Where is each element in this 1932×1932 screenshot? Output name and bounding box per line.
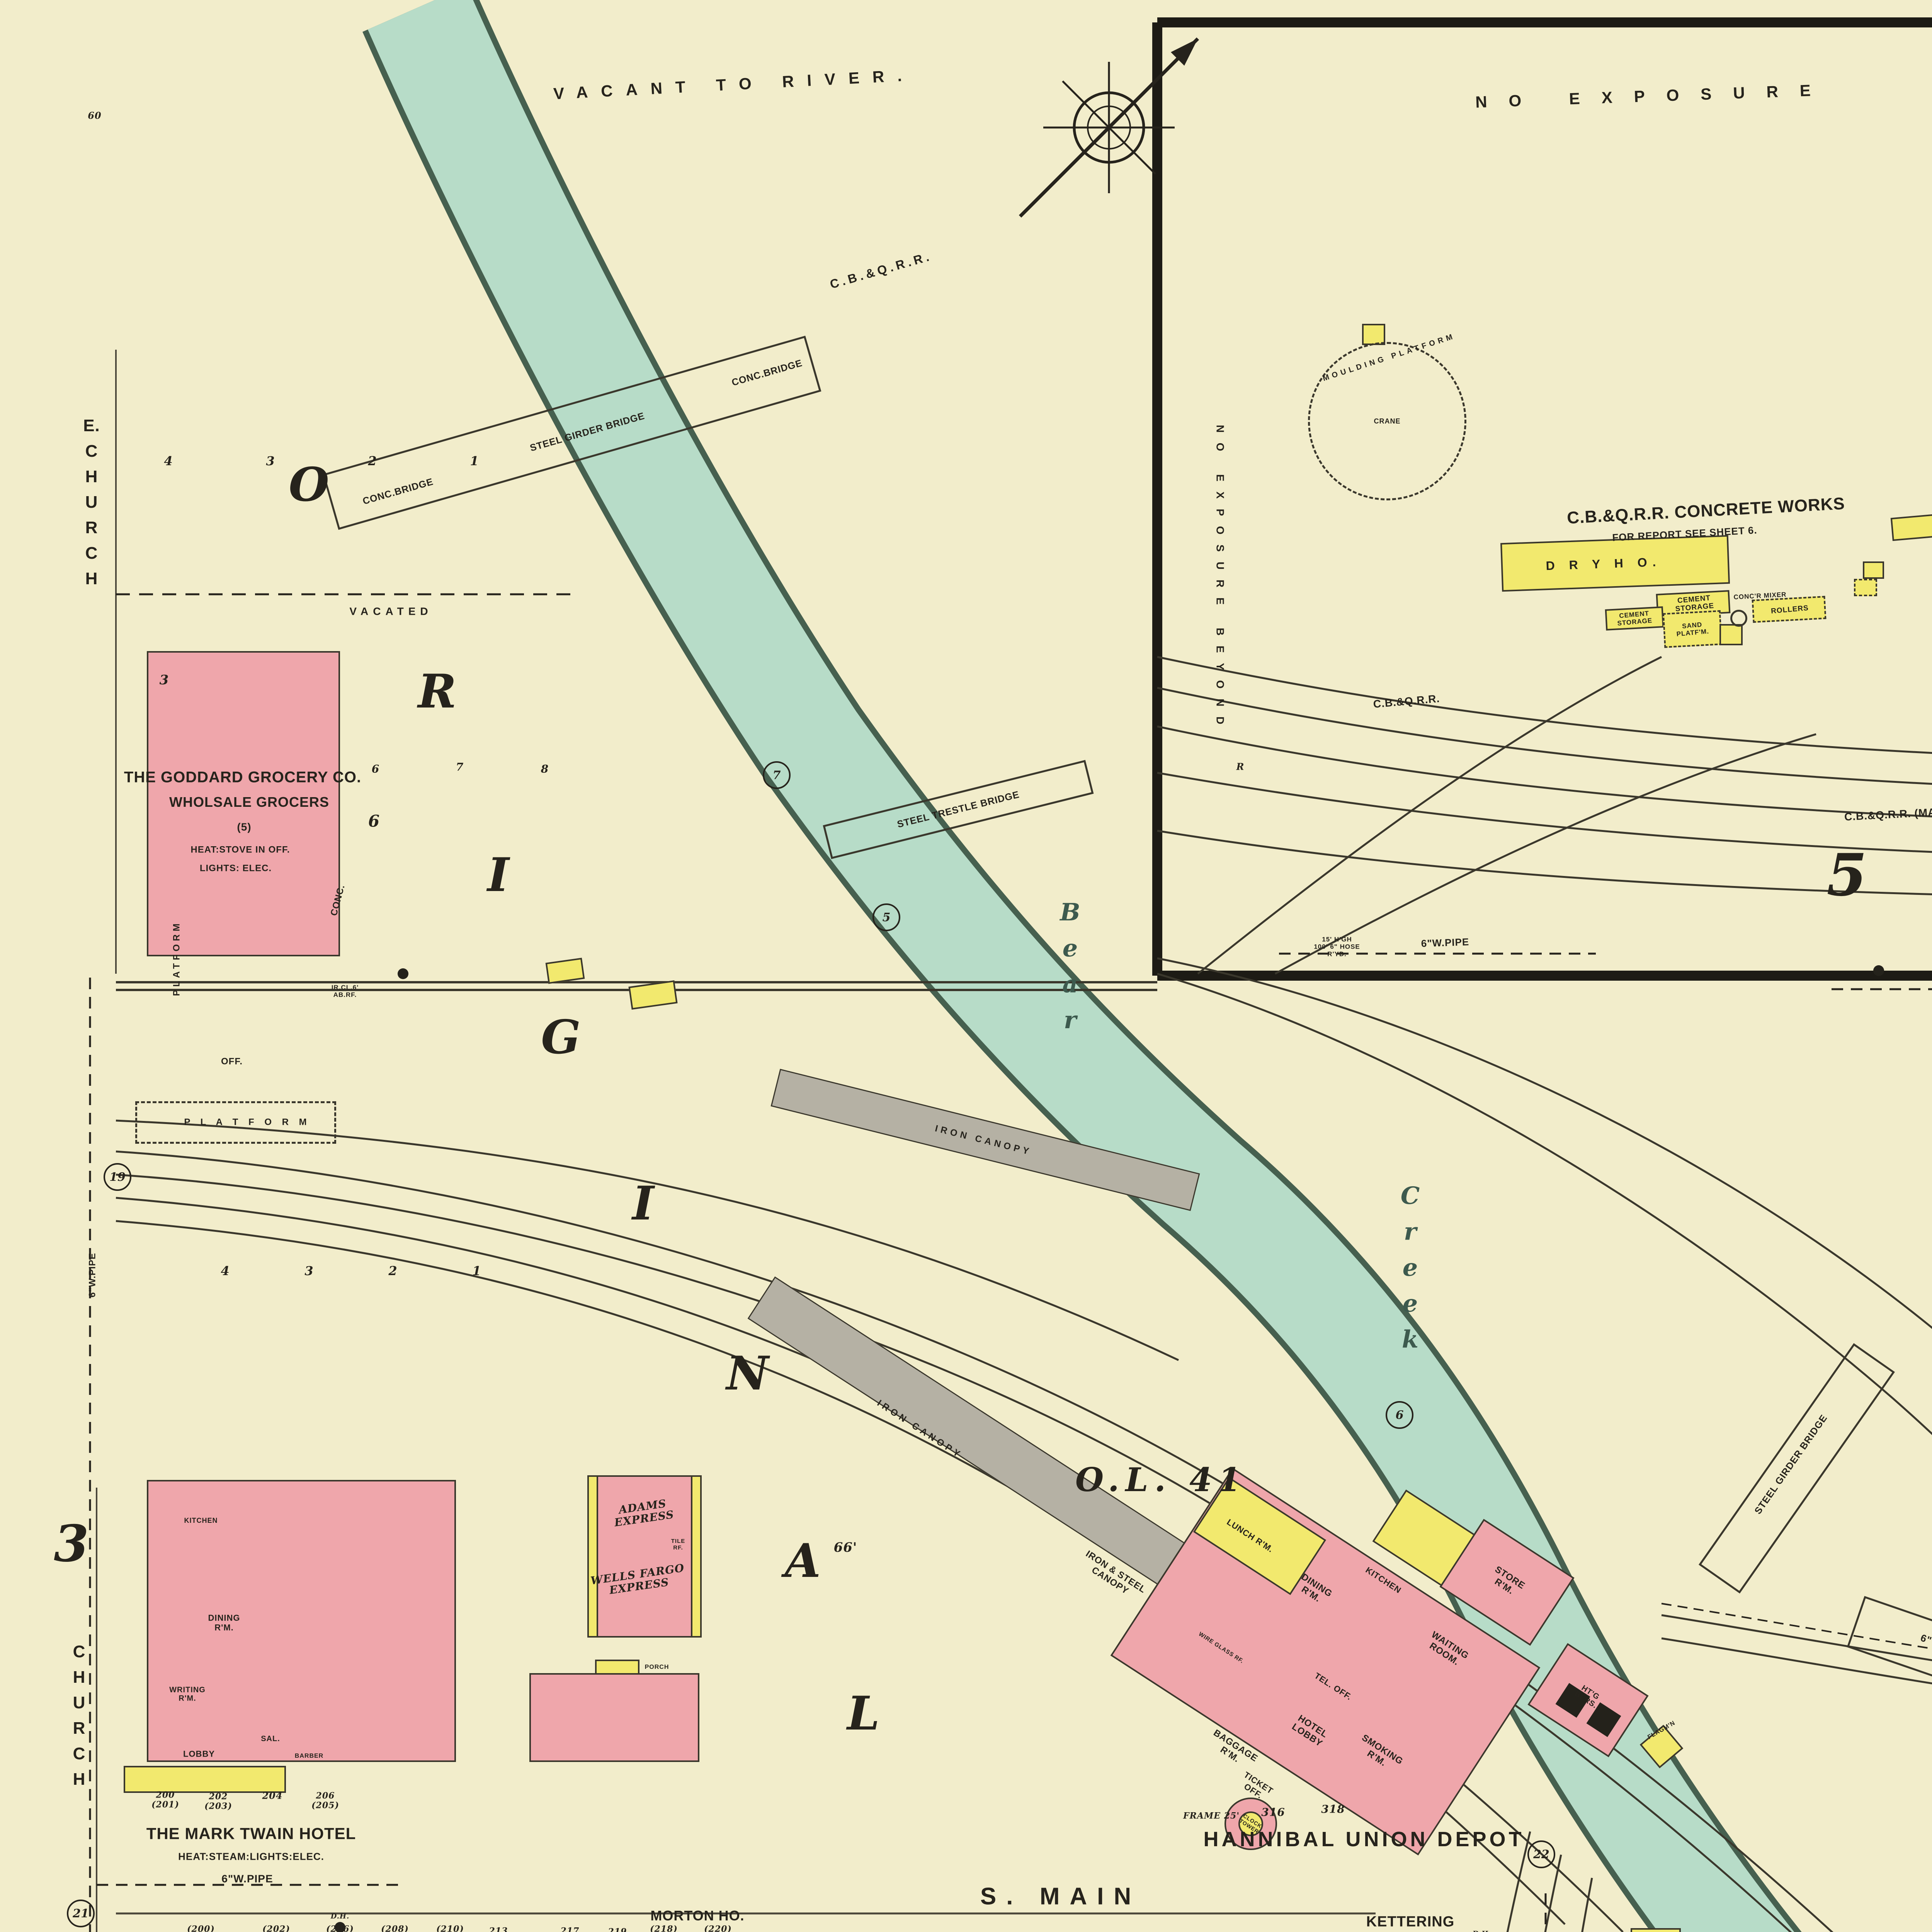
map-label: 6 [372, 763, 379, 775]
map-label: BARBER [295, 1753, 323, 1760]
map-label: D.H. [1473, 1930, 1492, 1932]
map-label: 3 [266, 454, 275, 468]
map-label: R [418, 666, 457, 718]
map-label: 206 (205) [311, 1791, 339, 1810]
map-building [529, 1673, 699, 1762]
map-label: (200) 201 [187, 1924, 215, 1932]
map-label: 3 [54, 1515, 89, 1572]
map-label: 2 [388, 1264, 397, 1278]
map-label: CEMENT STORAGE [1616, 609, 1653, 627]
map-label: CEMENT STORAGE [1674, 594, 1714, 613]
circled-number: 22 [1527, 1840, 1555, 1868]
circled-number: 6 [1386, 1401, 1413, 1429]
map-building [1362, 324, 1385, 345]
circled-number: 7 [763, 761, 791, 789]
map-label: 15' H'GH 100' 6" HOSE R'YD. [1314, 935, 1360, 957]
map-label: 200 (201) [151, 1790, 179, 1809]
map-label: HEAT:STEAM:LIGHTS:ELEC. [178, 1851, 324, 1862]
map-label: HANNIBAL UNION DEPOT [1203, 1828, 1524, 1851]
map-label: O [289, 459, 330, 511]
map-label: 1 [470, 454, 479, 468]
track [1157, 831, 1932, 900]
map-label: (202) 203 [262, 1924, 290, 1932]
map-label: SAL. [261, 1735, 280, 1743]
map-label: 316 [1261, 1806, 1285, 1818]
circled-number: 21 [67, 1900, 95, 1927]
map-label: 7 [456, 761, 464, 773]
map-label: (218) 221 [650, 1924, 678, 1932]
map-label: (210) 211 [436, 1924, 464, 1932]
map-label: LIGHTS: ELEC. [200, 864, 272, 874]
map-building [1631, 1928, 1681, 1932]
map-label: 219 [608, 1927, 627, 1932]
map-label: KITCHEN [184, 1517, 218, 1524]
hydrant-dot [398, 968, 408, 979]
map-label: IR.CL.6' AB.RF. [332, 984, 359, 998]
map-label: I [632, 1178, 654, 1230]
map-label: LOBBY [183, 1750, 215, 1759]
map-building [1854, 579, 1877, 596]
map-label: 4 [221, 1264, 230, 1278]
map-label: 6"W.PIPE [221, 1872, 273, 1884]
map-label: NO EXPOSURE BEYOND [1214, 425, 1226, 735]
map-label: SAND PLATF'M. [1675, 620, 1709, 638]
map-building [1719, 624, 1743, 645]
map-label: 4 [164, 454, 173, 468]
map-label: 318 [1321, 1803, 1345, 1815]
map-label: (208) 209 [381, 1924, 409, 1932]
map-building [1863, 561, 1884, 579]
map-label: MORTON HO. [650, 1908, 744, 1923]
map-label: E. C H U R C H [83, 413, 100, 592]
map-label: N [726, 1348, 769, 1400]
map-label: (5) [237, 821, 251, 833]
circled-number: 5 [872, 903, 900, 931]
map-label: HEAT:STOVE IN OFF. [190, 845, 290, 855]
map-label: WRITING R'M. [169, 1686, 206, 1703]
map-label: B e a r [1060, 894, 1080, 1038]
map-label: THE GODDARD GROCERY CO. [124, 769, 361, 786]
map-label: D.H. [331, 1913, 350, 1920]
map-label: DINING R'M. [208, 1613, 240, 1632]
map-label: 60 [88, 111, 101, 121]
map-label: (220) 223 [704, 1924, 732, 1932]
map-label: L [847, 1688, 880, 1740]
map-label: (206) 207 [326, 1924, 354, 1932]
map-label: PLATFORM [172, 920, 182, 996]
track [1157, 688, 1932, 796]
map-building [587, 1475, 598, 1638]
map-label: CRANE [1374, 417, 1400, 425]
map-label: C H U R C H [73, 1639, 86, 1792]
map-label: 202 (203) [204, 1792, 232, 1811]
map-label: 5 [1827, 843, 1867, 908]
map-label: R [1236, 762, 1245, 772]
map-label: 8 [541, 763, 549, 775]
map-label: I [487, 849, 509, 901]
map-label: S. MAIN [980, 1883, 1141, 1910]
map-label: KETTERING HOTEL [1366, 1913, 1455, 1932]
circled-number: 19 [104, 1163, 131, 1191]
map-label: VACATED [349, 605, 432, 617]
map-label: THE MARK TWAIN HOTEL [146, 1824, 356, 1842]
map-label: WHOLSALE GROCERS [169, 794, 329, 810]
map-label: 66' [834, 1540, 857, 1555]
map-label: 6"W.PIPE [88, 1253, 98, 1297]
map-label: 213 [489, 1927, 508, 1932]
map-label: 204 [262, 1791, 282, 1801]
map-label: 6"W.PIPE [1421, 936, 1469, 949]
map-label: 2 [368, 454, 377, 468]
map-label: PORCH [645, 1664, 669, 1671]
map-label: 6 [368, 812, 380, 830]
hydrant-dot [1873, 965, 1884, 976]
map-building [124, 1766, 286, 1793]
map-label: FRAME 25' [1183, 1811, 1240, 1821]
map-building [691, 1475, 702, 1638]
map-label: OFF. [221, 1057, 243, 1067]
map-structure [1730, 610, 1747, 627]
sanborn-map-sheet: Nov.1913 HANNIBAL Mo. 4 Scale of Feet. V… [0, 0, 1932, 1932]
map-label: C r e e k [1401, 1178, 1420, 1357]
map-label: 3 [304, 1264, 313, 1278]
map-label: TILE RF. [671, 1538, 685, 1551]
map-label: 3 [160, 673, 169, 687]
map-label: O.L. 41 [1075, 1462, 1247, 1498]
map-label: G [541, 1012, 581, 1063]
map-label: A [785, 1535, 821, 1587]
map-label: 217 [561, 1927, 580, 1932]
map-label: P L A T F O R M [184, 1117, 310, 1128]
map-label: 1 [472, 1264, 481, 1278]
